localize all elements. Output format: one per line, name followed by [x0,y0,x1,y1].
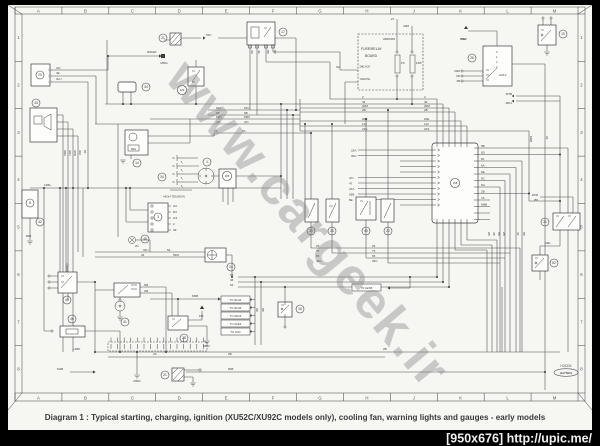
wire-label: 47A [349,187,354,191]
component-number: 24 [229,265,233,269]
component-number: 31 [543,220,547,224]
wire-label: 52M [173,253,179,257]
ign-switch-code: H3/L2 [499,73,507,77]
wire-label: 30M [403,24,409,28]
wire-label: 63C [206,33,212,37]
ignition-switch-26: 0 1 2 3 H3/L2 [483,46,512,86]
wire-label: 6B [481,144,485,148]
wire-label: 30D [68,150,72,156]
component-number: 17 [281,30,285,34]
wire-label: 4E [257,50,261,54]
wire-label: 2B [502,232,506,236]
publisher-logo: HAYNES [560,371,572,375]
inhibitor-relay-28 [168,316,188,330]
wire-label: 112 [424,122,429,126]
wire-label: 52 [230,283,234,287]
wire-label: MM3 [203,344,210,348]
board-tag-top: 3/BROWN [383,37,395,41]
ph2-label: PH2 [460,37,466,41]
doc-number: H24334 [560,364,571,368]
board-title-1: FUSE/RELAY [361,47,383,51]
wire-label: 5M [144,283,149,287]
wire-label: 6B [255,308,259,312]
component-number: 46 [70,317,74,321]
wire-label: 26 [545,136,549,140]
wire-label: 2B [362,108,366,112]
relay-17 [247,22,275,48]
component-number: 21 [163,373,167,377]
wire-label: 12Bu [44,183,51,187]
switch-15 [278,302,292,317]
component-number: 43 [34,101,38,105]
wire-label: M6L [545,241,551,245]
wire-label: 2B [481,190,485,194]
component-number: 52 [552,261,556,265]
diagram-caption: Diagram 1 : Typical starting, charging, … [45,413,546,422]
grid-col-label: B [84,395,87,400]
wire-label: 8B [266,50,270,54]
wire-label: 2B [228,352,232,356]
wire-label: 2M [144,289,149,293]
grid-col-label: K [459,9,462,14]
relay-40 [356,197,376,220]
component-number: 28 [182,336,186,340]
grid-col-label: F [272,9,275,14]
wire-label: 6MX [63,150,67,156]
wire-label: 112 [362,122,367,126]
cross-reference-label: TO 3b/H6 [230,306,242,310]
wire-label: 22S [424,127,429,131]
ignition-switch-45 [58,272,77,293]
wire-label: 5B [497,232,501,236]
grid-col-label: A [37,9,40,14]
wire-label: 75 [372,249,376,253]
component-number: 45 [65,298,69,302]
board-title-2: BOARD [365,54,378,58]
wire-label: 52 [167,248,171,252]
wire-label: 30M [454,69,460,73]
wire-label: M1B [57,367,63,371]
component-number: 40 [364,229,368,233]
wire-label: 3DD [73,150,77,157]
grid-col-label: M [553,9,557,14]
board-tag-bottom: 1/WHITE [360,77,371,81]
wire-label: F1B [416,61,422,65]
reg-label: REG [131,148,136,151]
wire-label: 3B [492,232,496,236]
component-number: 15 [298,307,302,311]
wire-label: 22A [351,149,356,153]
grid-col-label: A [37,395,40,400]
wire-label: F5 [401,61,405,65]
wire-label: 20E [362,117,367,121]
grid-col-label: J [413,9,415,14]
wire-label: 30Z [78,150,82,155]
component-number: 8 [29,201,31,205]
sender-22 [381,199,394,222]
wire-label: 60B [228,367,233,371]
wire-label: M6B [481,203,487,207]
component-number: 48 [143,237,147,241]
wire-label: 4E [56,71,60,75]
wire-label: E5R [532,193,539,197]
wire-label: RWGR [147,50,157,54]
wire-label: 32 [141,253,145,257]
earth-stud [161,54,165,58]
component-number: 44 [144,85,148,89]
wire-label: S2 [336,65,340,69]
grid-col-label: D [178,9,181,14]
component-number: 10 [561,32,565,36]
wire-label: B06 [26,234,32,238]
component-number: 42 [38,220,42,224]
wire-label: 2J [391,17,395,21]
relay-31 [553,213,580,230]
grid-col-label: M [553,395,557,400]
wire-label: 6A [481,164,485,168]
horn-unit [30,108,57,142]
wire-label: 8B [261,308,265,312]
cross-reference-label: TO 1f/J2 [230,330,241,334]
wire-label: M7B [506,92,512,96]
wire-label: 6G [481,183,486,187]
wire-label: 2B [424,108,428,112]
wire-label: 30C [351,154,357,158]
high-tension-label: HIGH TENSION [163,195,185,199]
connector-44 [118,82,136,92]
wire-label: D3 [173,210,177,214]
wire-label: MD1 [506,101,513,105]
wire-label: L2BK [73,347,80,351]
wire-label: 3LU [56,77,62,81]
component-number: 22 [386,229,390,233]
grid-col-label: H [365,395,368,400]
wire-label: 4B [456,79,460,83]
component-number: 14 [135,161,139,165]
wire-label: MMG [160,61,168,65]
cross-reference-label: TO 3d/A6 [230,314,242,318]
wire-label: M6B [192,294,198,298]
component-number: 41 [123,320,127,324]
grid-col-label: E [225,395,228,400]
wire-label: M2B [529,136,533,142]
cross-reference-label: TO 3e/E2 [230,322,242,326]
wire-label: MMG [133,379,141,383]
wire-label: 3Z [173,228,177,232]
component-number: 26 [470,56,474,60]
component-number: 3 [157,215,159,219]
wire-label: 5B [522,232,526,236]
wire-label: 20E [424,117,429,121]
wire-label: 2B [487,232,491,236]
grid-col-label: E [225,9,228,14]
board-tag-mid: 2/BLACK [360,65,371,69]
wire-label: 6F [481,157,485,161]
component-number: 158 [453,181,458,185]
component-number: 34 [160,175,164,179]
grid-col-label: K [459,395,462,400]
grid-col-label: C [131,9,134,14]
component-number: 1 [206,160,208,164]
wire-label: B5 [534,198,538,202]
cross-reference-label: TO 3b/H4 [230,298,242,302]
wiring-diagram: AABBCCDDEEFFGGHHJJKKLLMM1122334455667788… [0,0,600,446]
wire-label: 47 [349,182,353,186]
wire-label: 2A [153,352,157,356]
wire-label: 26B [349,193,354,197]
wire-label: 32U [143,248,149,252]
wire-label: 7A [481,196,485,200]
relay-10 [538,25,556,45]
wire-label: 2H [173,204,177,208]
wire-label: FM [199,314,204,318]
wire-label: 4Z [516,232,520,236]
wire-label: 52 [230,273,234,277]
wire-label: 8E [349,198,353,202]
relay-52 [532,255,548,271]
wire-label: 8Z [83,150,87,154]
grid-col-label: D [178,395,181,400]
grid-col-label: B [84,9,87,14]
component-number: 21 [161,36,165,40]
cooling-fan-motor [205,248,226,262]
footer-url: [950x676] http://upic.me/ [446,432,592,446]
ignition-module [170,33,181,45]
wire-label: G3 [173,216,177,220]
component-number: 20 [38,73,42,77]
wire-label: 46 [230,278,234,282]
wire-label: 22S [362,127,367,131]
wire-label: 25 [372,244,376,248]
fusible-link-46 [60,326,85,337]
grid-col-label: F [272,395,275,400]
wire-label: 6E [481,170,485,174]
grid-col-label: H [365,9,368,14]
screenshot-root: AABBCCDDEEFFGGHHJJKKLLMM1122334455667788… [0,0,600,446]
grid-col-label: C [131,395,134,400]
